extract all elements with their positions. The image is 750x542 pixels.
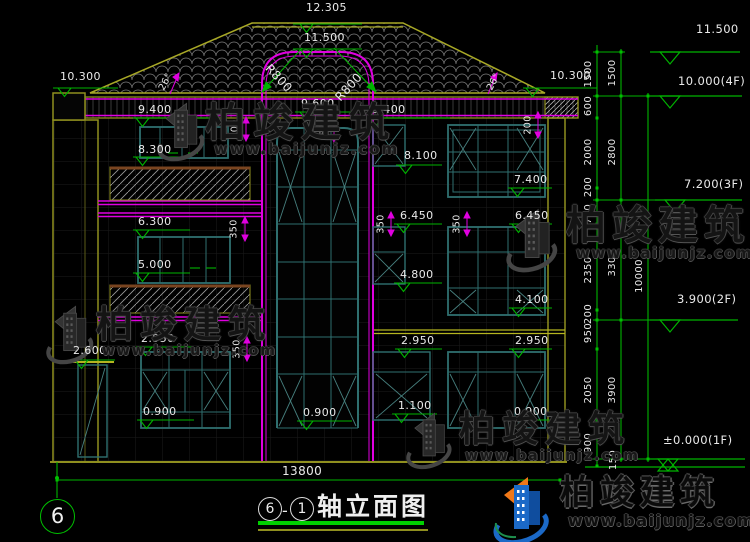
- chain-dim: 600: [584, 96, 594, 116]
- watermark-url: www.baijunjz.com: [465, 449, 640, 463]
- elev-label: 2.950: [515, 335, 549, 346]
- watermark-brand: 柏竣建筑: [459, 412, 631, 448]
- drawing-title: 轴立面图: [317, 494, 429, 519]
- chain-dim: 2050: [584, 376, 594, 403]
- watermark-brand: 柏竣建筑: [96, 306, 272, 343]
- elev-label: 8.100: [404, 150, 438, 161]
- chain-dim: 950: [584, 323, 594, 343]
- title-axis-bubble-end: 1: [290, 497, 314, 521]
- level-label: 11.500: [696, 24, 739, 36]
- watermark-url: www.baijunjz.com: [576, 246, 750, 261]
- small-dim: 350: [376, 214, 386, 233]
- chain-dim: 200: [584, 177, 594, 197]
- watermark-url: www.baijunjz.com: [214, 142, 399, 157]
- elev-label: 8.300: [138, 144, 172, 155]
- chain-dim: 2000: [584, 138, 594, 165]
- chain-dim: 3900: [608, 376, 618, 403]
- chain-dim: 2800: [608, 138, 618, 165]
- title-axis-separator: -: [282, 503, 288, 519]
- title-underline: [258, 521, 424, 525]
- watermark-url: www.baijunjz.com: [102, 344, 277, 358]
- chain-dim: 1500: [584, 60, 594, 87]
- elev-label: 0.900: [303, 407, 337, 418]
- small-dim: 350: [229, 219, 239, 238]
- elev-label: 5.000: [138, 259, 172, 270]
- grid-axis-bubble: 6: [40, 499, 75, 534]
- chain-dim: 200: [584, 304, 594, 324]
- watermark-brand: 柏竣建筑: [566, 206, 750, 246]
- brand-logo-text: 柏竣建筑: [560, 476, 720, 510]
- level-label: 3.900(2F): [677, 294, 736, 306]
- elev-label: 6.300: [138, 216, 172, 227]
- elev-label: 9.400: [138, 104, 172, 115]
- overall-width-dim: 13800: [282, 465, 322, 477]
- level-label: 7.200(3F): [684, 179, 743, 191]
- level-label: ±0.000(1F): [663, 435, 732, 447]
- small-dim: 350: [452, 214, 462, 233]
- level-label: 10.000(4F): [678, 76, 745, 88]
- cad-elevation-drawing: 10.300 12.305 11.500 9.400 9.600 9.400 1…: [0, 0, 750, 542]
- elev-label: 10.300: [60, 71, 101, 82]
- elev-label: 11.500: [304, 32, 345, 43]
- elev-label: 12.305: [306, 2, 347, 13]
- watermark-brand: 柏竣建筑: [205, 103, 397, 143]
- chain-dim: 10000: [635, 259, 645, 293]
- brand-logo-icon: [496, 477, 546, 542]
- elev-label: 6.450: [400, 210, 434, 221]
- small-dim: 200: [523, 115, 533, 134]
- title-underline-thin: [258, 529, 428, 531]
- brand-logo-url: www.baijunjz.com: [568, 513, 750, 529]
- elev-label: 4.800: [400, 269, 434, 280]
- elev-label: 4.100: [515, 294, 549, 305]
- elev-label: 0.900: [143, 406, 177, 417]
- elev-label: 7.400: [514, 174, 548, 185]
- chain-dim: 1500: [608, 59, 618, 86]
- elev-label: 2.950: [401, 335, 435, 346]
- title-axis-bubble-start: 6: [258, 497, 282, 521]
- elev-label: 6.450: [515, 210, 549, 221]
- elev-label: 1.100: [398, 400, 432, 411]
